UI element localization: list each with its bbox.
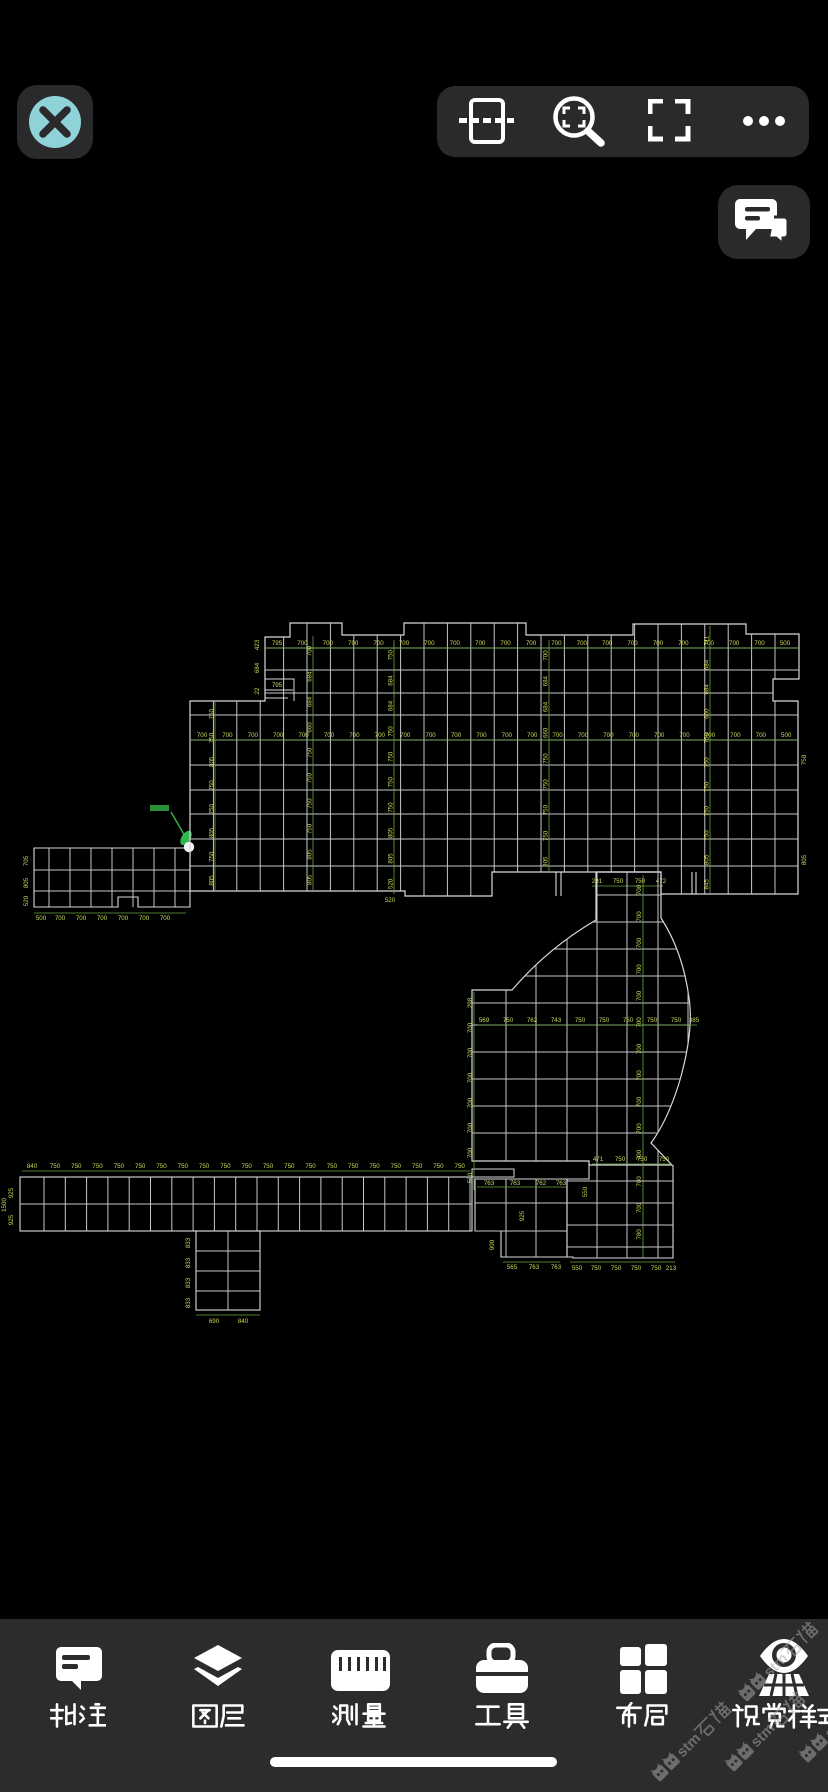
svg-text:700: 700	[527, 732, 538, 739]
svg-text:700: 700	[323, 640, 334, 647]
svg-text:750: 750	[388, 649, 395, 660]
svg-text:840: 840	[238, 1318, 249, 1325]
svg-text:700: 700	[679, 732, 690, 739]
svg-text:684: 684	[388, 675, 395, 686]
svg-text:750: 750	[209, 708, 216, 719]
svg-text:750: 750	[637, 1156, 648, 1163]
svg-text:700: 700	[76, 915, 87, 922]
svg-text:805: 805	[543, 856, 550, 867]
svg-text:805: 805	[209, 875, 216, 886]
svg-text:700: 700	[348, 640, 359, 647]
svg-text:700: 700	[222, 732, 233, 739]
svg-text:700: 700	[636, 1070, 643, 1081]
svg-text:569: 569	[479, 1017, 490, 1024]
svg-text:684: 684	[254, 662, 261, 673]
svg-text:750: 750	[199, 1163, 210, 1170]
svg-text:925: 925	[519, 1210, 526, 1221]
svg-text:520: 520	[385, 897, 396, 904]
svg-text:750: 750	[156, 1163, 167, 1170]
svg-text:750: 750	[242, 1163, 253, 1170]
svg-text:700: 700	[636, 990, 643, 1001]
svg-text:750: 750	[631, 1265, 642, 1272]
svg-text:750: 750	[704, 830, 711, 841]
svg-text:684: 684	[543, 701, 550, 712]
svg-text:763: 763	[510, 1180, 521, 1187]
svg-text:750: 750	[575, 1017, 586, 1024]
svg-text:743: 743	[551, 1017, 562, 1024]
svg-text:22: 22	[254, 687, 261, 694]
svg-text:690: 690	[209, 1318, 220, 1325]
svg-text:700: 700	[451, 732, 462, 739]
svg-text:700: 700	[629, 732, 640, 739]
svg-text:700: 700	[197, 732, 208, 739]
svg-text:805: 805	[388, 827, 395, 838]
svg-text:750: 750	[369, 1163, 380, 1170]
svg-text:700: 700	[636, 1123, 643, 1134]
svg-text:750: 750	[305, 1163, 316, 1170]
svg-text:925: 925	[8, 1187, 15, 1198]
svg-text:700: 700	[654, 732, 665, 739]
svg-text:500: 500	[780, 640, 791, 647]
svg-text:700: 700	[756, 732, 767, 739]
svg-text:500: 500	[781, 732, 792, 739]
svg-text:763: 763	[484, 1180, 495, 1187]
svg-text:471: 471	[593, 1156, 604, 1163]
svg-text:750: 750	[704, 732, 711, 743]
svg-text:805: 805	[704, 854, 711, 865]
svg-text:833: 833	[185, 1297, 192, 1308]
svg-text:805: 805	[307, 849, 314, 860]
svg-text:700: 700	[551, 640, 562, 647]
svg-text:711: 711	[704, 635, 711, 645]
svg-text:762: 762	[536, 1180, 547, 1187]
svg-text:805: 805	[307, 874, 314, 885]
svg-text:750: 750	[543, 830, 550, 841]
svg-text:684: 684	[704, 684, 711, 695]
svg-text:684: 684	[307, 671, 314, 682]
svg-text:520: 520	[23, 895, 30, 906]
svg-text:700: 700	[602, 640, 613, 647]
svg-text:700: 700	[400, 732, 411, 739]
svg-text:750: 750	[307, 747, 314, 758]
svg-text:550: 550	[582, 1186, 589, 1197]
svg-text:750: 750	[71, 1163, 82, 1170]
svg-text:684: 684	[388, 700, 395, 711]
svg-text:840: 840	[27, 1163, 38, 1170]
svg-text:700: 700	[502, 732, 513, 739]
svg-text:750: 750	[704, 781, 711, 792]
svg-text:700: 700	[467, 1047, 474, 1058]
svg-text:750: 750	[135, 1163, 146, 1170]
svg-text:805: 805	[388, 853, 395, 864]
svg-text:750: 750	[388, 726, 395, 737]
svg-text:660: 660	[704, 708, 711, 719]
svg-text:750: 750	[651, 1265, 662, 1272]
svg-text:700: 700	[552, 732, 563, 739]
svg-text:750: 750	[348, 1163, 359, 1170]
svg-text:423: 423	[254, 639, 261, 650]
svg-text:500: 500	[36, 915, 47, 922]
svg-text:795: 795	[272, 682, 283, 689]
svg-text:833: 833	[185, 1257, 192, 1268]
svg-text:750: 750	[543, 779, 550, 790]
svg-text:520: 520	[388, 878, 395, 889]
svg-text:700: 700	[636, 1202, 643, 1213]
svg-text:750: 750	[412, 1163, 423, 1170]
svg-text:750: 750	[611, 1265, 622, 1272]
svg-text:700: 700	[324, 732, 335, 739]
svg-text:700: 700	[55, 915, 66, 922]
svg-text:750: 750	[114, 1163, 125, 1170]
svg-text:700: 700	[543, 650, 550, 661]
svg-text:700: 700	[160, 915, 171, 922]
svg-text:700: 700	[297, 640, 308, 647]
svg-text:700: 700	[636, 911, 643, 922]
svg-text:700: 700	[118, 915, 129, 922]
svg-text:750: 750	[455, 1163, 466, 1170]
svg-text:213: 213	[666, 1265, 677, 1272]
svg-text:750: 750	[623, 1017, 634, 1024]
svg-text:750: 750	[543, 804, 550, 815]
svg-text:700: 700	[475, 640, 486, 647]
svg-text:805: 805	[209, 756, 216, 767]
svg-text:700: 700	[636, 964, 643, 975]
svg-text:750: 750	[671, 1017, 682, 1024]
svg-text:700: 700	[450, 640, 461, 647]
svg-text:700: 700	[636, 1017, 643, 1028]
svg-text:750: 750	[388, 802, 395, 813]
svg-text:700: 700	[139, 915, 150, 922]
svg-text:750: 750	[704, 805, 711, 816]
svg-text:700: 700	[467, 1122, 474, 1133]
svg-text:700: 700	[349, 732, 360, 739]
svg-text:763: 763	[551, 1264, 562, 1271]
svg-text:700: 700	[526, 640, 537, 647]
svg-text:700: 700	[399, 640, 410, 647]
svg-text:763: 763	[556, 1180, 567, 1187]
svg-text:1500: 1500	[1, 1198, 8, 1212]
svg-text:700: 700	[375, 732, 386, 739]
svg-text:700: 700	[577, 640, 588, 647]
svg-text:565: 565	[507, 1264, 518, 1271]
svg-text:750: 750	[307, 798, 314, 809]
svg-text:700: 700	[653, 640, 664, 647]
svg-text:750: 750	[284, 1163, 295, 1170]
svg-text:750: 750	[92, 1163, 103, 1170]
svg-text:700: 700	[97, 915, 108, 922]
svg-text:700: 700	[467, 1022, 474, 1033]
svg-text:700: 700	[636, 937, 643, 948]
svg-text:700: 700	[730, 732, 741, 739]
svg-text:700: 700	[476, 732, 487, 739]
svg-text:750: 750	[50, 1163, 61, 1170]
svg-text:700: 700	[467, 1072, 474, 1083]
svg-text:700: 700	[636, 884, 643, 895]
svg-text:700: 700	[729, 640, 740, 647]
svg-text:750: 750	[391, 1163, 402, 1170]
svg-text:700: 700	[636, 1043, 643, 1054]
svg-text:750: 750	[659, 1156, 670, 1163]
svg-text:700: 700	[307, 645, 314, 656]
svg-text:833: 833	[185, 1277, 192, 1288]
svg-text:750: 750	[543, 753, 550, 764]
svg-text:700: 700	[424, 640, 435, 647]
svg-text:900: 900	[489, 1239, 496, 1250]
svg-text:700: 700	[248, 732, 259, 739]
svg-text:750: 750	[591, 1265, 602, 1272]
svg-text:700: 700	[467, 1147, 474, 1158]
svg-text:700: 700	[578, 732, 589, 739]
svg-text:750: 750	[209, 732, 216, 743]
svg-text:750: 750	[503, 1017, 514, 1024]
svg-text:763: 763	[529, 1264, 540, 1271]
svg-text:750: 750	[220, 1163, 231, 1170]
svg-text:700: 700	[627, 640, 638, 647]
svg-text:750: 750	[647, 1017, 658, 1024]
svg-text:750: 750	[209, 780, 216, 791]
svg-text:700: 700	[636, 1096, 643, 1107]
svg-text:750: 750	[704, 757, 711, 768]
svg-text:660: 660	[543, 727, 550, 738]
svg-text:684: 684	[543, 675, 550, 686]
svg-text:700: 700	[500, 640, 511, 647]
svg-text:795: 795	[272, 640, 283, 647]
svg-text:750: 750	[388, 776, 395, 787]
svg-text:750: 750	[801, 754, 808, 765]
svg-text:750: 750	[263, 1163, 274, 1170]
svg-text:762: 762	[527, 1017, 538, 1024]
svg-text:750: 750	[433, 1163, 444, 1170]
svg-text:700: 700	[754, 640, 765, 647]
svg-text:805: 805	[209, 827, 216, 838]
svg-text:805: 805	[23, 877, 30, 888]
svg-text:700: 700	[273, 732, 284, 739]
svg-text:750: 750	[615, 1156, 626, 1163]
svg-text:684: 684	[307, 696, 314, 707]
svg-text:750: 750	[307, 772, 314, 783]
svg-text:700: 700	[425, 732, 436, 739]
svg-text:833: 833	[185, 1237, 192, 1248]
svg-text:298: 298	[467, 997, 474, 1008]
svg-text:750: 750	[613, 878, 624, 885]
svg-text:845: 845	[704, 879, 711, 890]
svg-text:750: 750	[178, 1163, 189, 1170]
svg-text:700: 700	[603, 732, 614, 739]
svg-text:700: 700	[373, 640, 384, 647]
svg-text:750: 750	[209, 851, 216, 862]
svg-text:550: 550	[572, 1265, 583, 1272]
svg-text:700: 700	[467, 1097, 474, 1108]
svg-text:750: 750	[209, 803, 216, 814]
svg-text:750: 750	[307, 823, 314, 834]
svg-text:750: 750	[635, 878, 646, 885]
svg-text:780: 780	[636, 1229, 643, 1240]
svg-text:684: 684	[704, 659, 711, 670]
svg-text:805: 805	[801, 854, 808, 865]
svg-text:750: 750	[327, 1163, 338, 1170]
svg-text:705: 705	[23, 855, 30, 866]
svg-text:925: 925	[8, 1214, 15, 1225]
svg-text:750: 750	[599, 1017, 610, 1024]
svg-text:750: 750	[388, 751, 395, 762]
svg-text:385: 385	[689, 1017, 700, 1024]
svg-text:700: 700	[678, 640, 689, 647]
svg-text:660: 660	[307, 722, 314, 733]
